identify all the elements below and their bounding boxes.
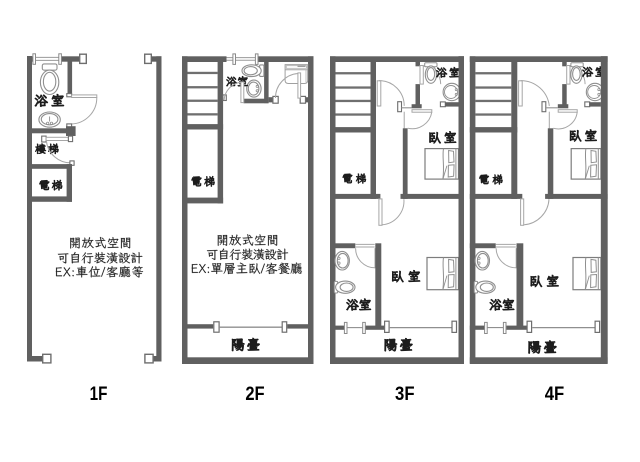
svg-text:4F: 4F bbox=[545, 384, 565, 405]
svg-text:1F: 1F bbox=[90, 384, 108, 405]
svg-text:2F: 2F bbox=[245, 384, 264, 405]
svg-text:3F: 3F bbox=[395, 384, 415, 405]
